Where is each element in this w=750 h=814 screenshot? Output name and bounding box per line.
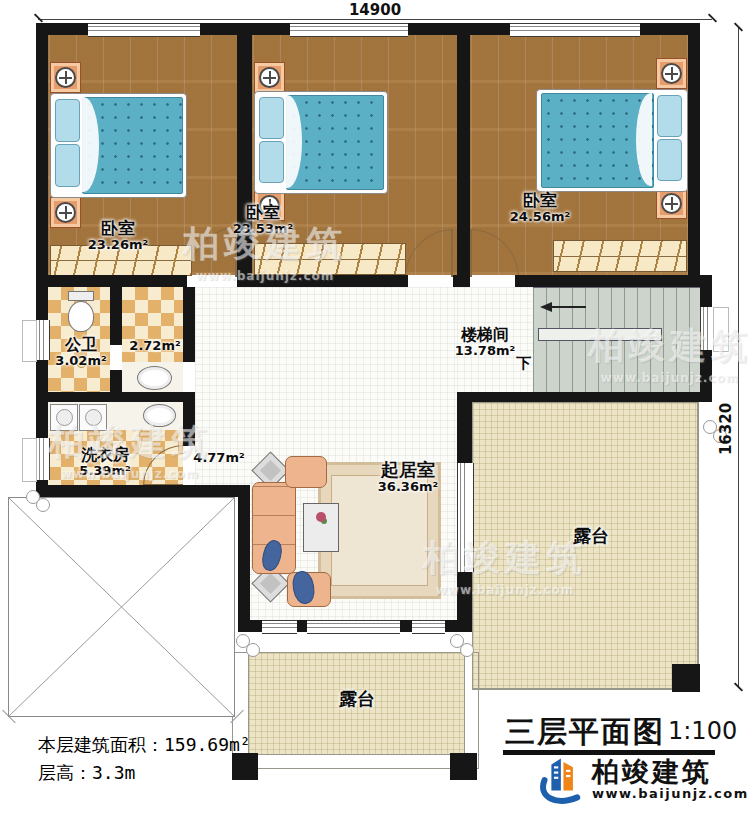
laundry-label: 洗衣房 5.39m²	[79, 446, 130, 478]
vanity-area: 2.72m²	[129, 339, 180, 354]
sofa-armchair-top	[285, 456, 327, 488]
drain-pipe-icon	[246, 643, 260, 657]
bedroom1-name: 卧室	[88, 219, 148, 238]
window-sill	[22, 438, 37, 482]
bedroom3-name: 卧室	[510, 191, 570, 210]
wall-bath-divider-lower	[110, 370, 122, 392]
wall-living-bottom-pier3	[400, 620, 412, 632]
bedroom1-nightstand2-lamp-icon	[50, 197, 81, 228]
window-laundry	[36, 438, 50, 480]
dimension-tick	[34, 13, 43, 22]
wall-right-bedroom3	[688, 23, 700, 287]
floor-area-line: 本层建筑面积：159.69m²	[38, 733, 251, 757]
terrace-right-label: 露台	[573, 526, 609, 546]
bedroom3-door-leaf	[470, 229, 472, 277]
window-sill	[22, 320, 37, 362]
floor-height-label: 层高：	[38, 762, 92, 783]
wall-left-middle	[36, 360, 48, 438]
toilet-icon	[68, 301, 94, 332]
roof-cross-lines	[9, 498, 234, 716]
dimension-top-label: 14900	[340, 1, 410, 19]
floor-height-value: 3.3m	[92, 762, 135, 783]
stair-arrow-tail	[552, 306, 586, 308]
bathroom-label: 公卫 3.02m²	[55, 336, 106, 368]
wall-living-right-upper	[457, 392, 472, 463]
bedroom2-door-leaf	[451, 229, 453, 277]
living-name: 起居室	[378, 460, 438, 480]
hallway-area: 4.77m²	[193, 451, 244, 466]
sliding-door-terrace-right	[457, 463, 474, 572]
bathroom-name: 公卫	[55, 336, 106, 354]
bedroom2-area: 23.53m²	[233, 222, 293, 237]
bedroom2-name: 卧室	[233, 203, 293, 222]
window-living-2	[412, 620, 445, 634]
stairwell-name: 楼梯间	[455, 326, 515, 344]
terrace-bottom-name: 露台	[339, 689, 375, 709]
window-living-1	[262, 620, 297, 634]
toilet-tank	[68, 291, 94, 301]
pillow	[657, 95, 682, 137]
wall-stair-right-upper	[700, 275, 712, 307]
bedroom2-label: 卧室 23.53m²	[233, 203, 293, 237]
coffee-table	[303, 503, 339, 552]
bedroom3-nightstand-lamp-icon	[656, 58, 687, 89]
terrace-right-name: 露台	[573, 526, 609, 546]
washer-drum-icon	[56, 409, 73, 426]
bedroom3-area: 24.56m²	[510, 210, 570, 225]
floor-area-label: 本层建筑面积：	[38, 734, 164, 755]
wall-bedrooms-bottom-3	[453, 275, 470, 287]
terrace-bottom-label: 露台	[339, 689, 375, 709]
dimension-right-label: 16320	[717, 399, 735, 459]
bedroom1-area: 23.26m²	[88, 238, 148, 253]
stair-down-label: 下	[517, 355, 532, 372]
pillow	[55, 99, 80, 142]
window-bedroom2	[290, 23, 408, 37]
wall-vanity-right	[183, 287, 195, 362]
wall-bedrooms-bottom-4	[515, 275, 712, 287]
wall-living-right-lower	[457, 572, 472, 620]
living-area: 36.36m²	[378, 480, 438, 495]
bedroom1-label: 卧室 23.26m²	[88, 219, 148, 253]
vanity-sink-icon	[137, 366, 172, 390]
wall-left-upper	[36, 23, 48, 320]
wall-laundry-bottom	[36, 485, 250, 497]
window-sill	[713, 307, 729, 352]
wall-bedroom1-2	[237, 35, 252, 275]
column-terrace-right	[672, 664, 700, 692]
wall-living-bottom-pier1	[238, 620, 262, 632]
stair-arrow-head-icon	[540, 302, 552, 312]
plan-title: 三层平面图	[505, 712, 665, 753]
lamp-icon	[661, 193, 682, 214]
brand-name: 柏竣建筑	[592, 754, 712, 790]
drain-pipe-icon	[36, 498, 50, 512]
brand-logo-icon	[534, 756, 586, 806]
pillow	[259, 141, 284, 183]
window-bedroom3	[510, 23, 640, 37]
window-bathroom	[36, 320, 50, 360]
bedroom2-wardrobe	[254, 243, 406, 275]
stairwell-area: 13.78m²	[455, 344, 515, 359]
brand-site: www.baijunjz.com	[592, 786, 749, 801]
lamp-icon	[259, 67, 280, 88]
plan-scale: 1:100	[668, 717, 737, 745]
table-flowers-icon	[316, 512, 326, 522]
bedroom1-nightstand-lamp-icon	[50, 62, 81, 93]
wall-stair-right-lower	[700, 350, 712, 402]
bedroom3-wardrobe	[553, 240, 687, 272]
wall-living-bottom-pier4	[445, 620, 472, 632]
laundry-sink-icon	[143, 404, 176, 427]
window-bedroom1	[88, 23, 200, 37]
washer-drum-icon	[85, 409, 102, 426]
wall-laundry-right	[183, 402, 195, 446]
laundry-area: 5.39m²	[79, 464, 130, 479]
bathroom-area: 3.02m²	[55, 354, 106, 369]
bedroom3-label: 卧室 24.56m²	[510, 191, 570, 225]
drain-pipe-icon	[460, 643, 474, 657]
stair-handrail	[538, 328, 662, 341]
bedroom3-nightstand2-lamp-icon	[656, 188, 687, 219]
wall-living-left	[238, 497, 250, 620]
column-terrace-bottom-right	[450, 753, 477, 780]
lamp-icon	[55, 202, 76, 223]
lower-roof	[8, 497, 235, 717]
floor-area-value: 159.69m²	[164, 734, 251, 755]
lamp-icon	[55, 67, 76, 88]
floor-plan-canvas: 14900 16320 柏竣建筑 www.baijunjz.com 柏竣建筑 w…	[0, 0, 750, 814]
living-label: 起居室 36.36m²	[378, 460, 438, 495]
wall-stair-bottom	[457, 392, 712, 402]
wall-bedrooms-bottom-2	[237, 275, 408, 287]
washing-machine-icon	[79, 404, 107, 431]
bedroom2-nightstand-lamp-icon	[254, 62, 285, 93]
wall-bath-divider-upper	[110, 287, 122, 345]
stair-down-text: 下	[517, 355, 532, 372]
dimension-line-right	[738, 28, 739, 688]
washing-machine-icon	[50, 404, 78, 431]
pillow	[259, 97, 284, 139]
dimension-line-top	[38, 19, 712, 20]
pillow	[55, 144, 80, 187]
wall-bath-bottom	[36, 392, 195, 402]
wall-bedrooms-bottom-1	[36, 275, 187, 287]
column-terrace-bottom-left	[232, 753, 258, 780]
wall-bedroom2-3	[457, 35, 470, 275]
stairwell-label: 楼梯间 13.78m²	[455, 326, 515, 358]
wall-living-bottom-pier2	[297, 620, 307, 632]
sliding-door-living-bottom	[307, 620, 400, 634]
hallway-label: 4.77m²	[193, 451, 244, 466]
floor-height-line: 层高：3.3m	[38, 761, 135, 785]
lamp-icon	[661, 63, 682, 84]
dimension-tick	[708, 13, 717, 22]
laundry-name: 洗衣房	[79, 446, 130, 464]
pillow	[657, 139, 682, 181]
window-stairwell	[700, 307, 714, 350]
vanity-label: 2.72m²	[129, 339, 180, 354]
